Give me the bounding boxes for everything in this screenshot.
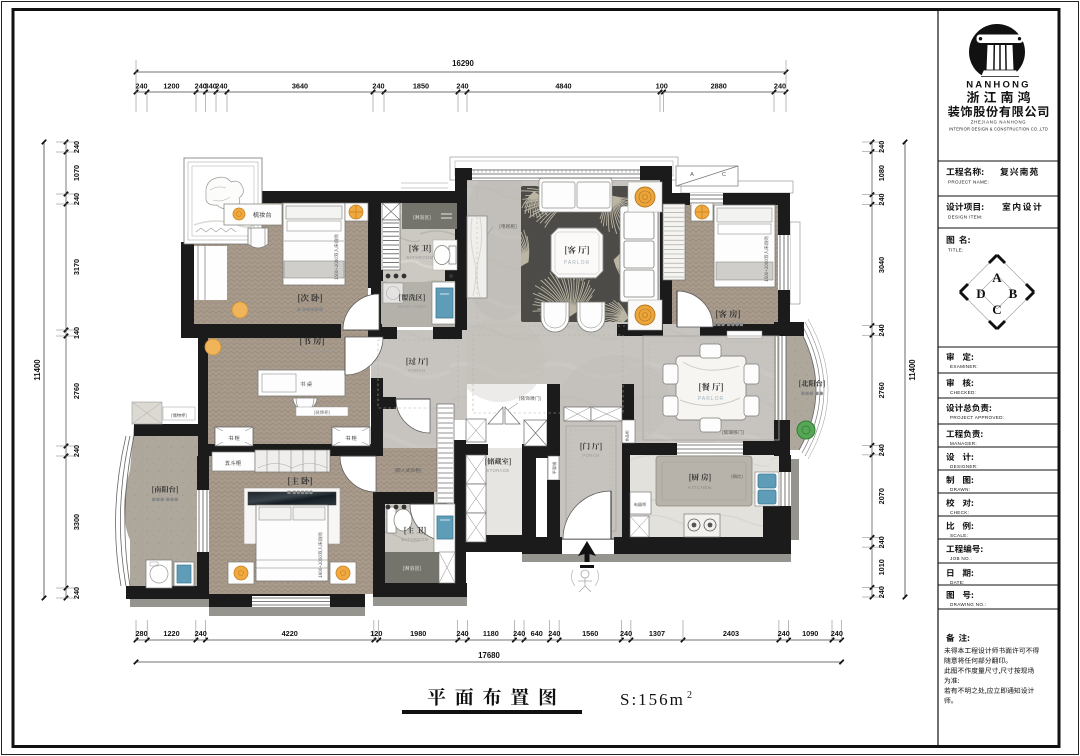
svg-text:SCALE:: SCALE: <box>950 533 968 538</box>
svg-text:MANAGER:: MANAGER: <box>950 441 977 446</box>
svg-text:JOB NO.:: JOB NO.: <box>950 556 972 561</box>
svg-text:C: C <box>992 302 1001 317</box>
svg-text:240: 240 <box>877 444 886 456</box>
svg-text:240: 240 <box>877 586 886 598</box>
svg-text:INTERIOR DESIGN & CONSTRUCTION: INTERIOR DESIGN & CONSTRUCTION CO.,LTD <box>949 127 1048 132</box>
svg-text:1080: 1080 <box>877 165 886 181</box>
svg-text:STORAGE: STORAGE <box>486 468 509 473</box>
svg-text:140: 140 <box>72 327 81 339</box>
svg-text:CHECKED:: CHECKED: <box>950 390 976 395</box>
svg-text:DRAWN:: DRAWN: <box>950 487 970 492</box>
svg-text:1307: 1307 <box>649 629 665 638</box>
svg-text:B: B <box>1009 286 1018 301</box>
svg-text:TITLE:: TITLE: <box>948 248 964 253</box>
svg-text:1220: 1220 <box>163 629 179 638</box>
svg-text:3300: 3300 <box>72 514 81 530</box>
svg-text:240: 240 <box>548 629 560 638</box>
svg-text:240: 240 <box>877 536 886 548</box>
svg-text:11400: 11400 <box>908 359 917 381</box>
svg-text:240: 240 <box>72 587 81 599</box>
svg-text:1010: 1010 <box>877 559 886 575</box>
svg-text:1090: 1090 <box>802 629 818 638</box>
svg-text:17680: 17680 <box>478 651 500 660</box>
svg-text:DESIGNER:: DESIGNER: <box>950 464 978 469</box>
svg-text:240: 240 <box>620 629 632 638</box>
svg-text:DESIGN ITEM:: DESIGN ITEM: <box>948 215 983 220</box>
svg-text:240: 240 <box>774 82 786 91</box>
svg-text:CHECK:: CHECK: <box>950 510 969 515</box>
svg-text:1180: 1180 <box>483 629 499 638</box>
svg-text:240: 240 <box>215 82 227 91</box>
svg-text:240: 240 <box>877 141 886 153</box>
svg-text:640: 640 <box>531 629 543 638</box>
svg-text:240: 240 <box>456 629 468 638</box>
svg-text:4220: 4220 <box>282 629 298 638</box>
svg-text:240: 240 <box>831 629 843 638</box>
svg-text:ZHEJIANG NANHONG: ZHEJIANG NANHONG <box>971 120 1027 125</box>
svg-text:16290: 16290 <box>452 59 474 68</box>
svg-text:2: 2 <box>687 690 692 701</box>
svg-text:2760: 2760 <box>72 383 81 399</box>
svg-text:2880: 2880 <box>711 82 727 91</box>
svg-text:240: 240 <box>195 629 207 638</box>
svg-text:1200: 1200 <box>163 82 179 91</box>
svg-text:DATE:: DATE: <box>950 580 965 585</box>
svg-text:240: 240 <box>456 82 468 91</box>
svg-text:1560: 1560 <box>582 629 598 638</box>
svg-text:1980: 1980 <box>410 629 426 638</box>
svg-text:STUDY ROOM: STUDY ROOM <box>294 349 329 354</box>
svg-text:BATHROOM: BATHROOM <box>406 255 433 260</box>
svg-text:3640: 3640 <box>292 82 308 91</box>
svg-text:PARLOR: PARLOR <box>698 396 724 402</box>
svg-text:240: 240 <box>72 445 81 457</box>
svg-text:280: 280 <box>136 629 148 638</box>
svg-text:PORCH: PORCH <box>582 453 600 458</box>
svg-text:240: 240 <box>372 82 384 91</box>
svg-text:120: 120 <box>370 629 382 638</box>
svg-text:2070: 2070 <box>877 488 886 504</box>
svg-text:PARLOR: PARLOR <box>564 260 590 266</box>
svg-text:11400: 11400 <box>33 359 42 381</box>
svg-text:A: A <box>690 172 694 178</box>
svg-text:PROJECT NAME:: PROJECT NAME: <box>948 180 989 185</box>
svg-text:240: 240 <box>778 629 790 638</box>
svg-text:2760: 2760 <box>877 382 886 398</box>
svg-text:D: D <box>976 286 985 301</box>
svg-text:PROJECT APPROVED:: PROJECT APPROVED: <box>950 415 1004 420</box>
svg-text:DRAWING NO.:: DRAWING NO.: <box>950 602 986 607</box>
svg-text:NANHONG: NANHONG <box>966 80 1030 91</box>
svg-text:A: A <box>992 270 1002 285</box>
svg-text:4840: 4840 <box>555 82 571 91</box>
svg-text:PORCH: PORCH <box>408 368 426 373</box>
svg-text:C: C <box>722 172 726 178</box>
svg-text:2403: 2403 <box>723 629 739 638</box>
svg-text:240: 240 <box>513 629 525 638</box>
svg-text:240: 240 <box>72 193 81 205</box>
svg-text:1850: 1850 <box>413 82 429 91</box>
svg-text:240: 240 <box>72 141 81 153</box>
svg-text:100: 100 <box>656 82 668 91</box>
svg-text:240: 240 <box>135 82 147 91</box>
svg-text:240: 240 <box>877 324 886 336</box>
svg-text:WASH AREA: WASH AREA <box>398 304 426 309</box>
svg-text:3040: 3040 <box>877 257 886 273</box>
svg-text:KITCHEN: KITCHEN <box>688 485 711 490</box>
svg-text:1070: 1070 <box>72 165 81 181</box>
svg-text:240: 240 <box>877 193 886 205</box>
svg-text:S:156m: S:156m <box>620 690 685 709</box>
svg-text:3170: 3170 <box>72 259 81 275</box>
svg-text:EXAMINER:: EXAMINER: <box>950 364 978 369</box>
svg-text:BATHROOM: BATHROOM <box>401 537 428 542</box>
